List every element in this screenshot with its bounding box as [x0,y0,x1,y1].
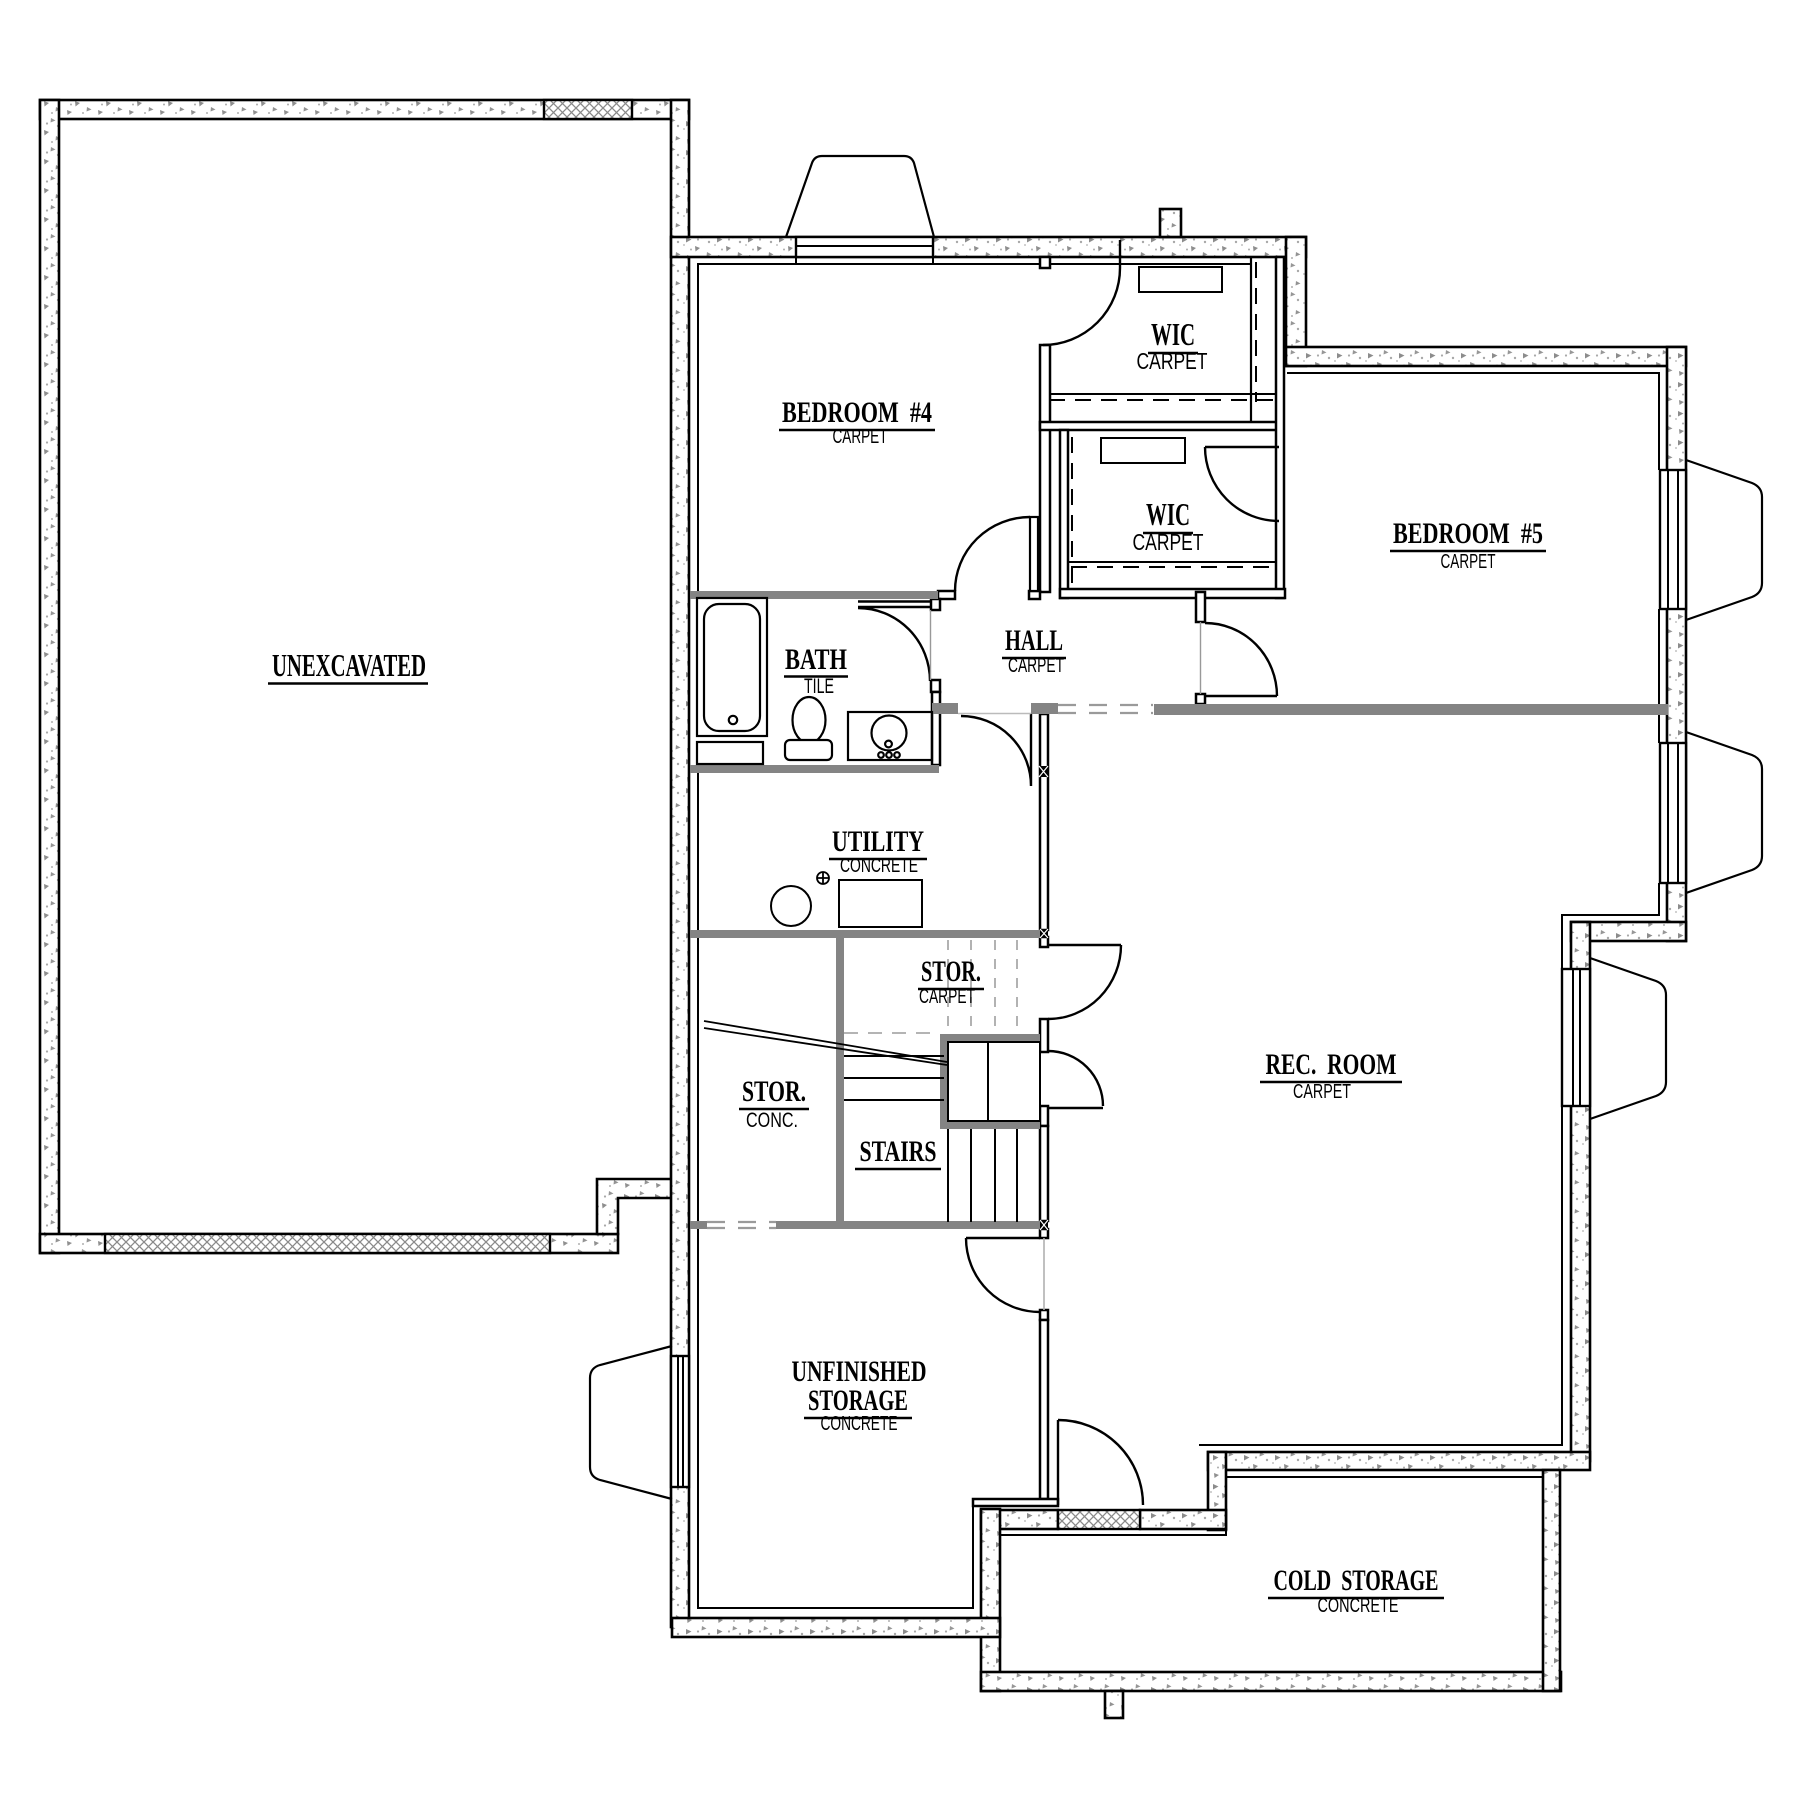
svg-text:CONCRETE: CONCRETE [821,1413,898,1435]
svg-text:CARPET: CARPET [1441,551,1496,573]
svg-text:COLD STORAGE: COLD STORAGE [1274,1564,1439,1597]
svg-text:UNEXCAVATED: UNEXCAVATED [272,647,426,683]
svg-text:UTILITY: UTILITY [832,825,924,858]
svg-text:CARPET: CARPET [833,426,888,448]
svg-text:BATH: BATH [785,643,847,676]
svg-text:CARPET: CARPET [1008,655,1064,677]
svg-text:CONCRETE: CONCRETE [1318,1595,1399,1617]
svg-text:HALL: HALL [1005,624,1063,657]
svg-text:BEDROOM #4: BEDROOM #4 [782,396,932,429]
svg-text:CONC.: CONC. [746,1109,798,1132]
svg-text:REC. ROOM: REC. ROOM [1266,1048,1397,1081]
svg-text:BEDROOM #5: BEDROOM #5 [1393,517,1543,550]
svg-text:CARPET: CARPET [1137,348,1208,374]
svg-text:CONCRETE: CONCRETE [840,855,918,877]
svg-text:CARPET: CARPET [1133,529,1204,555]
svg-text:CARPET: CARPET [919,986,975,1008]
svg-text:CARPET: CARPET [1293,1081,1351,1103]
svg-text:WIC: WIC [1151,316,1195,352]
svg-text:WIC: WIC [1146,496,1190,532]
svg-text:STOR.: STOR. [742,1075,806,1108]
svg-text:STOR.: STOR. [921,955,981,988]
svg-text:STAIRS: STAIRS [860,1135,937,1168]
svg-text:TILE: TILE [804,675,834,698]
